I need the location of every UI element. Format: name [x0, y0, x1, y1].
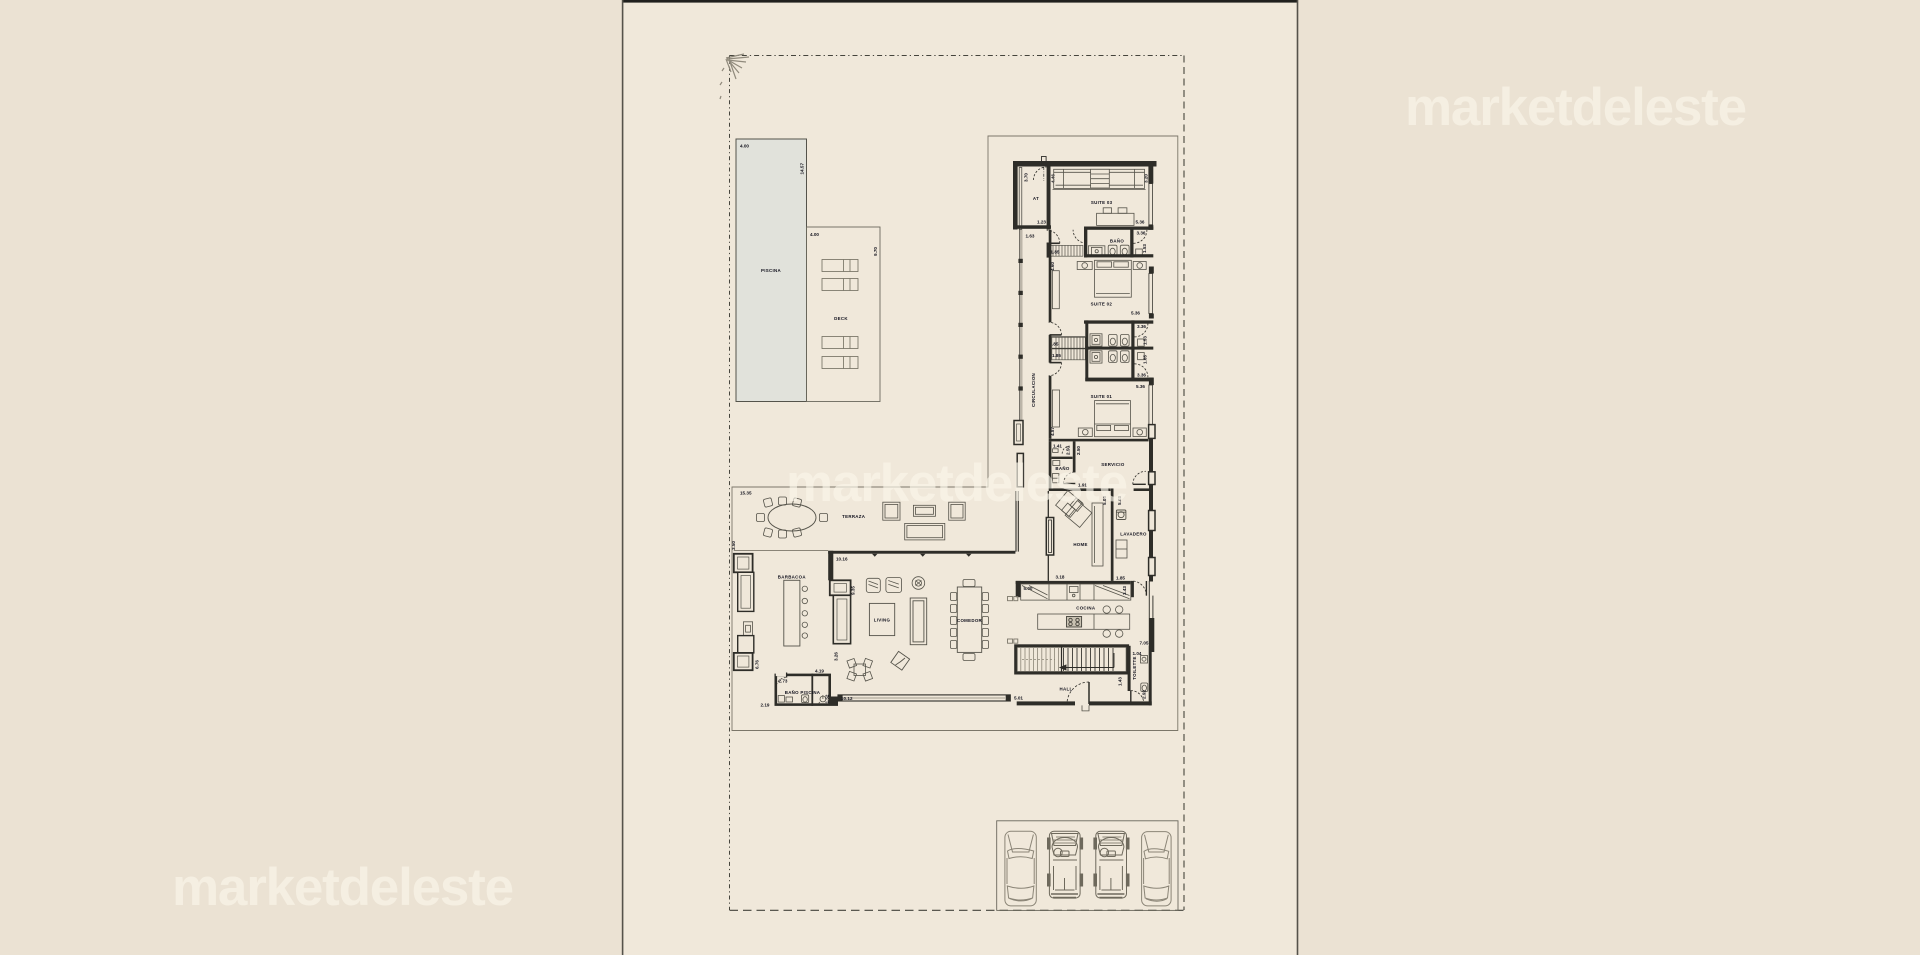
- svg-text:SUITE 03: SUITE 03: [1091, 200, 1113, 205]
- svg-text:1.63: 1.63: [1026, 234, 1035, 239]
- svg-text:3.26: 3.26: [834, 652, 839, 661]
- svg-text:4.00: 4.00: [740, 144, 749, 149]
- svg-text:COCINA: COCINA: [1076, 606, 1096, 611]
- svg-text:10.16: 10.16: [836, 557, 848, 562]
- svg-text:marketdeleste: marketdeleste: [1405, 78, 1746, 137]
- svg-text:SUITE 02: SUITE 02: [1091, 302, 1113, 307]
- svg-text:1.52: 1.52: [824, 694, 829, 703]
- svg-text:6.76: 6.76: [755, 660, 760, 669]
- svg-text:TERRAZA: TERRAZA: [842, 514, 866, 519]
- svg-text:LIVING: LIVING: [874, 618, 891, 623]
- svg-text:LAVADERO: LAVADERO: [1120, 532, 1147, 537]
- svg-text:CIRCULACION: CIRCULACION: [1031, 373, 1036, 407]
- svg-text:3.36: 3.36: [1137, 231, 1146, 236]
- svg-text:AT: AT: [1033, 196, 1039, 201]
- svg-text:1.85: 1.85: [1051, 250, 1060, 255]
- svg-text:3.70: 3.70: [1024, 173, 1029, 182]
- svg-text:5.01: 5.01: [1014, 695, 1023, 700]
- svg-text:5.36: 5.36: [1136, 220, 1145, 225]
- svg-text:15.35: 15.35: [740, 491, 752, 496]
- svg-text:BAÑO: BAÑO: [1110, 238, 1124, 243]
- svg-text:7.05: 7.05: [1140, 641, 1149, 646]
- svg-text:14.57: 14.57: [800, 163, 805, 175]
- svg-text:HALL: HALL: [1060, 687, 1073, 692]
- svg-text:3.43: 3.43: [1122, 586, 1127, 595]
- svg-text:COMEDOR: COMEDOR: [957, 618, 983, 623]
- svg-text:9.35: 9.35: [851, 586, 856, 595]
- svg-text:1.53: 1.53: [1143, 336, 1148, 345]
- svg-text:3.36: 3.36: [1137, 324, 1146, 329]
- svg-text:1.41: 1.41: [1053, 444, 1062, 449]
- svg-text:marketdeleste: marketdeleste: [786, 454, 1127, 513]
- svg-text:1.85: 1.85: [1116, 576, 1125, 581]
- svg-text:PISCINA: PISCINA: [761, 268, 781, 273]
- svg-text:2.92: 2.92: [1141, 690, 1146, 699]
- svg-text:3.36: 3.36: [1137, 373, 1146, 378]
- svg-text:1.85: 1.85: [1052, 353, 1061, 358]
- svg-text:1.65: 1.65: [1143, 355, 1148, 364]
- svg-text:4.60: 4.60: [1050, 262, 1055, 271]
- svg-text:.85: .85: [1052, 342, 1059, 347]
- svg-text:4.46: 4.46: [1051, 174, 1056, 183]
- svg-text:BARBACOA: BARBACOA: [778, 574, 807, 579]
- svg-text:marketdeleste: marketdeleste: [172, 858, 513, 917]
- svg-text:5.36: 5.36: [1136, 384, 1145, 389]
- svg-text:2.73: 2.73: [779, 679, 788, 684]
- svg-text:4.87: 4.87: [1050, 427, 1055, 436]
- svg-text:HOME: HOME: [1073, 542, 1087, 547]
- svg-text:5.36: 5.36: [1131, 311, 1140, 316]
- svg-text:4.00: 4.00: [810, 232, 819, 237]
- svg-text:1.23: 1.23: [1037, 220, 1046, 225]
- svg-text:3.18: 3.18: [1056, 575, 1065, 580]
- svg-text:BAÑO PISCINA: BAÑO PISCINA: [785, 690, 821, 695]
- svg-text:TOILETTE: TOILETTE: [1132, 656, 1137, 680]
- svg-text:10.12: 10.12: [841, 696, 853, 701]
- svg-text:2.19: 2.19: [761, 703, 770, 708]
- svg-text:9.70: 9.70: [873, 247, 878, 256]
- svg-text:SUITE 01: SUITE 01: [1091, 394, 1113, 399]
- svg-text:1.43: 1.43: [1118, 677, 1123, 686]
- svg-text:DECK: DECK: [834, 316, 848, 321]
- svg-text:3.50: 3.50: [731, 541, 736, 550]
- svg-text:4.19: 4.19: [815, 669, 824, 674]
